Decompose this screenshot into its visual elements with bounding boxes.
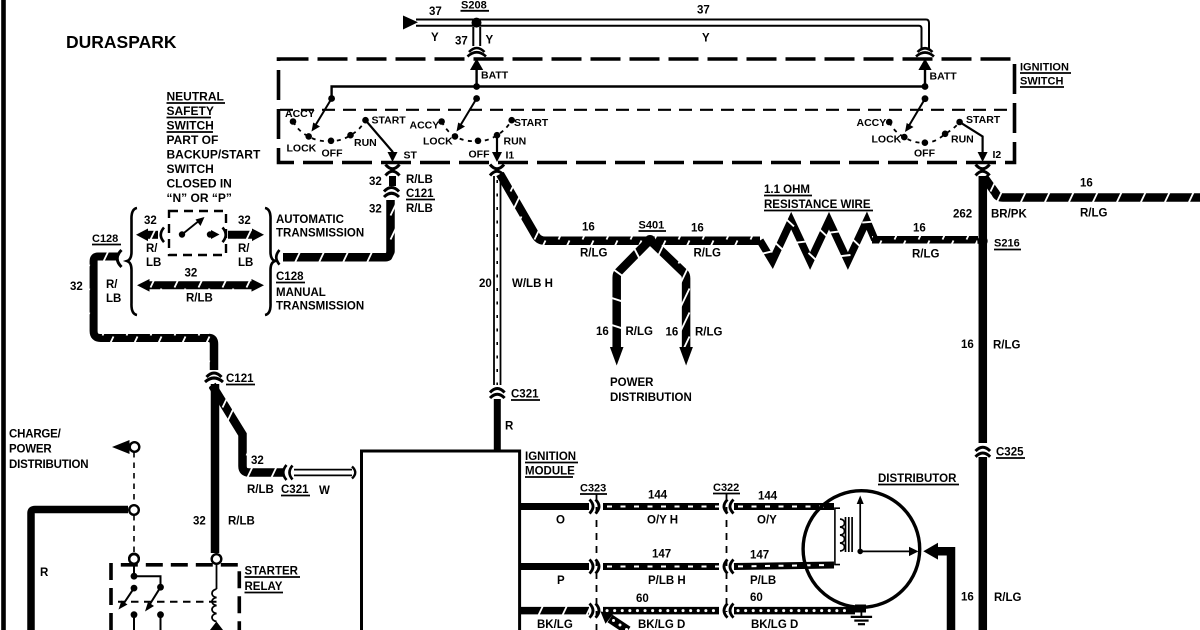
svg-text:16: 16 bbox=[1080, 178, 1093, 190]
svg-text:C323: C323 bbox=[580, 483, 606, 495]
svg-text:C321: C321 bbox=[511, 389, 539, 401]
svg-text:C121: C121 bbox=[406, 188, 434, 200]
svg-text:START: START bbox=[372, 115, 407, 127]
svg-text:W: W bbox=[319, 485, 330, 497]
svg-text:262: 262 bbox=[953, 209, 972, 221]
svg-text:LB: LB bbox=[238, 257, 253, 269]
svg-text:RUN: RUN bbox=[951, 134, 974, 146]
svg-text:LOCK: LOCK bbox=[872, 134, 902, 146]
svg-text:STARTER: STARTER bbox=[245, 566, 299, 578]
svg-text:OFF: OFF bbox=[322, 148, 344, 160]
svg-text:32: 32 bbox=[193, 516, 206, 528]
svg-text:Y: Y bbox=[431, 32, 439, 44]
svg-text:R/LG: R/LG bbox=[1080, 208, 1108, 220]
svg-text:32: 32 bbox=[369, 176, 382, 188]
svg-text:37: 37 bbox=[429, 6, 442, 18]
svg-text:DURASPARK: DURASPARK bbox=[66, 32, 177, 52]
svg-text:32: 32 bbox=[238, 215, 251, 227]
svg-text:RUN: RUN bbox=[354, 137, 377, 149]
svg-text:C321: C321 bbox=[281, 484, 309, 496]
svg-text:C128: C128 bbox=[92, 233, 118, 245]
svg-text:POWER: POWER bbox=[610, 377, 654, 389]
svg-text:LOCK: LOCK bbox=[287, 143, 317, 155]
svg-text:32: 32 bbox=[251, 455, 264, 467]
svg-text:16: 16 bbox=[582, 222, 595, 234]
svg-text:O/Y H: O/Y H bbox=[647, 515, 678, 527]
svg-text:147: 147 bbox=[750, 550, 769, 562]
svg-text:I1: I1 bbox=[506, 150, 515, 162]
svg-text:R: R bbox=[40, 567, 49, 579]
svg-text:R/LB: R/LB bbox=[228, 516, 255, 528]
svg-text:W/LB H: W/LB H bbox=[512, 278, 553, 290]
svg-text:CHARGE/: CHARGE/ bbox=[9, 429, 62, 441]
svg-text:IGNITION: IGNITION bbox=[525, 451, 576, 463]
svg-text:START: START bbox=[966, 114, 1001, 126]
svg-text:16: 16 bbox=[691, 223, 704, 235]
svg-text:144: 144 bbox=[758, 491, 778, 503]
svg-text:R/: R/ bbox=[106, 279, 118, 291]
svg-text:16: 16 bbox=[961, 339, 974, 351]
svg-text:32: 32 bbox=[70, 281, 83, 293]
svg-text:ACCY: ACCY bbox=[857, 117, 887, 129]
svg-text:R/LG: R/LG bbox=[580, 248, 608, 260]
svg-text:RUN: RUN bbox=[504, 136, 527, 148]
svg-text:SAFETY: SAFETY bbox=[167, 104, 214, 118]
svg-text:C128: C128 bbox=[276, 271, 304, 283]
svg-text:C325: C325 bbox=[996, 447, 1024, 459]
svg-text:ST: ST bbox=[404, 150, 418, 162]
svg-text:DISTRIBUTOR: DISTRIBUTOR bbox=[878, 473, 957, 485]
svg-text:LB: LB bbox=[146, 257, 161, 269]
svg-text:OFF: OFF bbox=[914, 148, 936, 160]
svg-text:C121: C121 bbox=[226, 373, 254, 385]
svg-text:RELAY: RELAY bbox=[245, 581, 283, 593]
svg-text:S401: S401 bbox=[639, 220, 665, 232]
svg-text:SWITCH: SWITCH bbox=[167, 119, 214, 133]
svg-text:60: 60 bbox=[750, 592, 763, 604]
svg-text:TRANSMISSION: TRANSMISSION bbox=[276, 301, 364, 313]
svg-text:CLOSED IN: CLOSED IN bbox=[167, 177, 232, 191]
svg-text:O/Y: O/Y bbox=[757, 515, 777, 527]
svg-text:BK/LG: BK/LG bbox=[537, 619, 573, 630]
svg-text:16: 16 bbox=[961, 592, 974, 604]
svg-text:P: P bbox=[557, 575, 565, 587]
svg-text:R/: R/ bbox=[238, 243, 250, 255]
svg-text:32: 32 bbox=[185, 268, 198, 280]
svg-text:R/LG: R/LG bbox=[695, 327, 723, 339]
svg-text:R/LG: R/LG bbox=[993, 340, 1021, 352]
svg-text:LOCK: LOCK bbox=[423, 136, 453, 148]
svg-text:AUTOMATIC: AUTOMATIC bbox=[276, 214, 344, 226]
svg-text:S208: S208 bbox=[461, 0, 487, 12]
svg-text:20: 20 bbox=[479, 278, 492, 290]
svg-text:LB: LB bbox=[106, 293, 121, 305]
svg-text:RESISTANCE WIRE: RESISTANCE WIRE bbox=[764, 199, 871, 211]
svg-text:“N” OR “P”: “N” OR “P” bbox=[167, 191, 232, 205]
svg-text:IGNITION: IGNITION bbox=[1020, 62, 1069, 74]
svg-text:R/LG: R/LG bbox=[912, 249, 940, 261]
svg-text:C322: C322 bbox=[713, 482, 739, 494]
svg-text:O: O bbox=[556, 515, 565, 527]
svg-text:P/LB H: P/LB H bbox=[648, 575, 686, 587]
svg-text:BK/LG D: BK/LG D bbox=[638, 619, 685, 630]
svg-text:32: 32 bbox=[369, 204, 382, 216]
svg-text:BATT: BATT bbox=[930, 71, 958, 83]
svg-text:ACCY: ACCY bbox=[285, 108, 315, 120]
svg-text:1.1 OHM: 1.1 OHM bbox=[764, 184, 810, 196]
svg-text:R/LG: R/LG bbox=[626, 326, 654, 338]
svg-text:TRANSMISSION: TRANSMISSION bbox=[276, 228, 364, 240]
svg-text:BACKUP/START: BACKUP/START bbox=[167, 148, 261, 162]
svg-text:37: 37 bbox=[455, 36, 468, 48]
svg-text:DISTRIBUTION: DISTRIBUTION bbox=[9, 459, 88, 471]
svg-text:16: 16 bbox=[596, 326, 609, 338]
svg-text:R/LG: R/LG bbox=[994, 592, 1022, 604]
svg-text:BATT: BATT bbox=[481, 70, 509, 82]
svg-text:DISTRIBUTION: DISTRIBUTION bbox=[610, 392, 692, 404]
svg-text:R/LB: R/LB bbox=[406, 174, 433, 186]
svg-text:MODULE: MODULE bbox=[525, 466, 575, 478]
svg-text:SWITCH: SWITCH bbox=[1020, 76, 1063, 88]
svg-text:144: 144 bbox=[648, 490, 668, 502]
svg-text:Y: Y bbox=[702, 33, 710, 45]
svg-text:16: 16 bbox=[913, 223, 926, 235]
svg-text:R/LB: R/LB bbox=[247, 484, 274, 496]
svg-text:MANUAL: MANUAL bbox=[276, 287, 326, 299]
svg-text:S216: S216 bbox=[994, 238, 1020, 250]
svg-text:R/: R/ bbox=[146, 243, 158, 255]
svg-text:NEUTRAL: NEUTRAL bbox=[167, 90, 224, 104]
svg-text:SWITCH: SWITCH bbox=[167, 162, 214, 176]
svg-text:R/LG: R/LG bbox=[694, 248, 722, 260]
svg-text:147: 147 bbox=[652, 549, 671, 561]
svg-text:16: 16 bbox=[666, 327, 679, 339]
svg-text:Y: Y bbox=[486, 35, 494, 47]
svg-text:R: R bbox=[505, 421, 514, 433]
svg-text:60: 60 bbox=[636, 593, 649, 605]
svg-text:R/LB: R/LB bbox=[406, 203, 433, 215]
svg-text:I2: I2 bbox=[993, 149, 1002, 161]
svg-text:BK/LG D: BK/LG D bbox=[751, 619, 798, 630]
svg-text:OFF: OFF bbox=[469, 149, 491, 161]
svg-text:BR/PK: BR/PK bbox=[991, 209, 1027, 221]
svg-text:P/LB: P/LB bbox=[750, 575, 776, 587]
svg-text:ACCY: ACCY bbox=[410, 120, 440, 132]
svg-text:R/LB: R/LB bbox=[186, 293, 213, 305]
svg-text:PART OF: PART OF bbox=[167, 133, 219, 147]
svg-text:POWER: POWER bbox=[9, 444, 52, 456]
svg-text:32: 32 bbox=[144, 215, 157, 227]
svg-text:37: 37 bbox=[697, 5, 710, 17]
svg-text:START: START bbox=[514, 117, 549, 129]
